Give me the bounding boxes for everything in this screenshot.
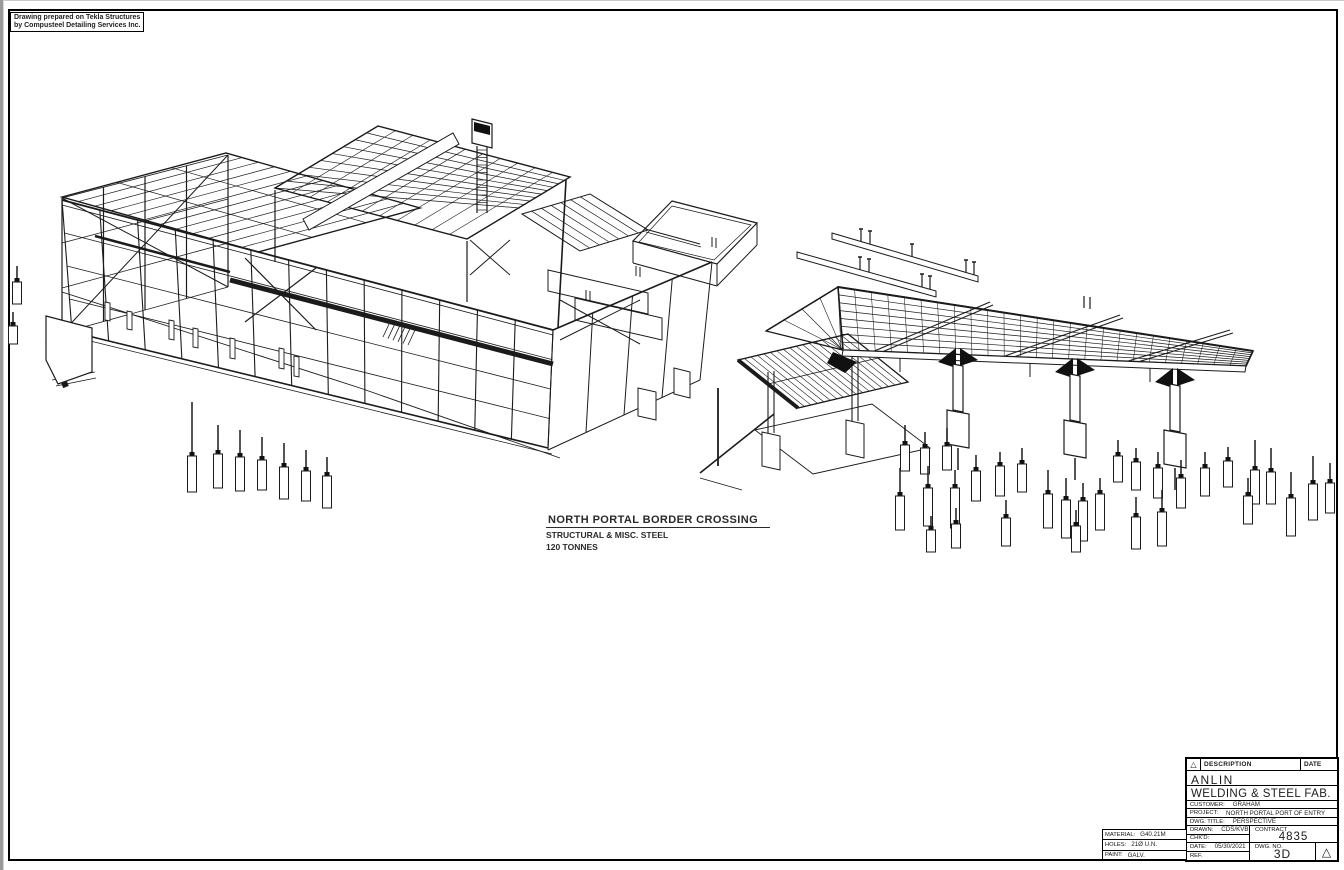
dwg-title-value: PERSPECTIVE (1225, 818, 1276, 825)
drawn-value: CDS/KVB (1213, 826, 1248, 833)
perspective-drawing (0, 0, 1344, 870)
title-block-grid: DRAWN: CDS/KVB CHK'D: DATE: 05/30/2021 R… (1187, 826, 1337, 860)
drawn-row: DRAWN: CDS/KVB (1187, 826, 1249, 835)
corner-triangle-icon: △ (1315, 843, 1337, 860)
material-block: MATERIAL: G40.21M HOLES: 21Ø U.N. PAINT:… (1102, 829, 1186, 860)
dwg-no-value: 3D (1250, 847, 1315, 861)
company-name-line1: ANLIN (1187, 771, 1337, 786)
drawing-label-sub2: 120 TONNES (546, 542, 770, 552)
chkd-label: CHK'D: (1187, 835, 1209, 841)
material-label: MATERIAL: (1103, 832, 1135, 838)
customer-label: CUSTOMER: (1187, 802, 1225, 808)
date-header: DATE (1300, 759, 1337, 770)
contract-cell: CONTRACT 4835 (1250, 826, 1337, 843)
customer-row: CUSTOMER: GRAHAM (1187, 801, 1337, 809)
customer-value: GRAHAM (1225, 801, 1260, 808)
holes-value: 21Ø U.N. (1126, 841, 1157, 848)
drawing-label-title: NORTH PORTAL BORDER CROSSING (546, 514, 770, 528)
description-header: DESCRIPTION (1201, 761, 1300, 768)
project-value: NORTH PORTAL PORT OF ENTRY (1218, 810, 1325, 817)
building-structure (9, 119, 758, 508)
title-block: △ DESCRIPTION DATE ANLIN WELDING & STEEL… (1185, 757, 1339, 862)
holes-label: HOLES: (1103, 842, 1126, 848)
dwg-title-label: DWG. TITLE: (1187, 819, 1225, 825)
canopy-structure (700, 229, 1335, 552)
chkd-row: CHK'D: (1187, 835, 1249, 844)
material-row: MATERIAL: G40.21M (1103, 830, 1186, 840)
drawing-sheet: Drawing prepared on Tekla Structures by … (0, 0, 1344, 870)
paint-row: PAINT: GALV. (1103, 851, 1186, 860)
contract-number: 4835 (1250, 831, 1337, 843)
paint-label: PAINT: (1103, 852, 1123, 858)
revision-triangle-icon: △ (1187, 759, 1201, 770)
date-label: DATE: (1187, 844, 1207, 850)
drawing-label-sub1: STRUCTURAL & MISC. STEEL (546, 530, 770, 540)
dwg-title-row: DWG. TITLE: PERSPECTIVE (1187, 818, 1337, 826)
holes-row: HOLES: 21Ø U.N. (1103, 840, 1186, 850)
dwg-no-cell: DWG. NO. 3D △ (1250, 843, 1337, 860)
paint-value: GALV. (1123, 852, 1145, 859)
ref-row: REF. (1187, 852, 1249, 861)
date-value: 05/30/2021 (1207, 843, 1246, 850)
project-row: PROJECT: NORTH PORTAL PORT OF ENTRY (1187, 809, 1337, 818)
drawing-label: NORTH PORTAL BORDER CROSSING STRUCTURAL … (546, 510, 770, 552)
drawn-label: DRAWN: (1187, 827, 1213, 833)
revision-header-row: △ DESCRIPTION DATE (1187, 759, 1337, 771)
ref-label: REF. (1187, 853, 1203, 859)
project-label: PROJECT: (1187, 810, 1218, 816)
material-value: G40.21M (1135, 831, 1165, 838)
date-row: DATE: 05/30/2021 (1187, 843, 1249, 852)
company-name-line2: WELDING & STEEL FAB. (1187, 786, 1337, 801)
